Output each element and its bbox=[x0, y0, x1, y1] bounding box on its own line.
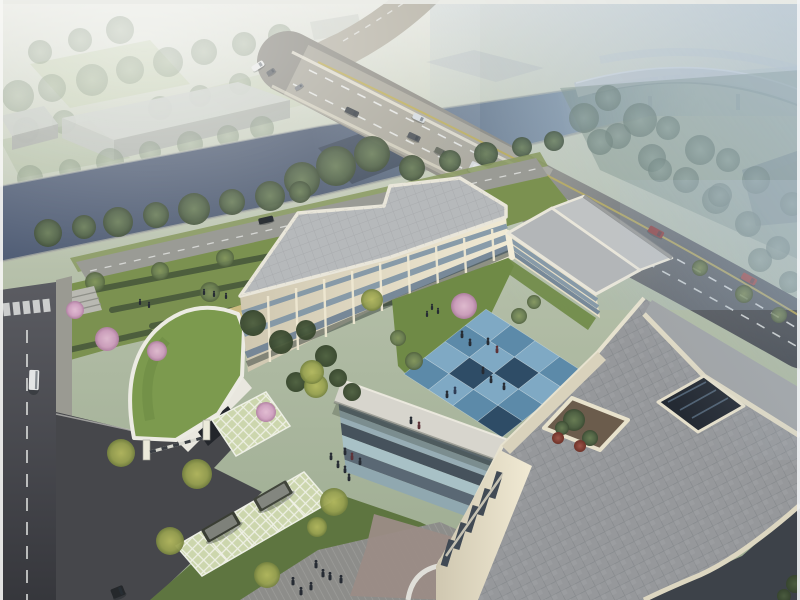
person bbox=[461, 331, 464, 339]
frame-top bbox=[0, 0, 800, 4]
person bbox=[454, 387, 457, 395]
planter-red-shrub bbox=[574, 440, 586, 452]
yellow-tree bbox=[156, 527, 184, 555]
frame-left bbox=[0, 0, 3, 600]
person bbox=[426, 311, 428, 317]
person bbox=[351, 453, 354, 461]
person bbox=[203, 289, 205, 295]
yellow-tree bbox=[107, 439, 135, 467]
person bbox=[225, 293, 227, 299]
person bbox=[437, 308, 439, 314]
yellow-tree bbox=[182, 459, 212, 489]
shrub bbox=[269, 330, 293, 354]
yellow-tree bbox=[254, 562, 280, 588]
planter-red-shrub bbox=[552, 432, 564, 444]
shrub bbox=[343, 383, 361, 401]
rendering-canvas bbox=[0, 0, 800, 600]
yellow-tree bbox=[307, 517, 327, 537]
person bbox=[496, 346, 499, 354]
person bbox=[344, 466, 347, 474]
person bbox=[213, 291, 215, 297]
shrub bbox=[329, 369, 347, 387]
person bbox=[314, 560, 317, 568]
garden-tree bbox=[151, 262, 169, 280]
yellow-tree bbox=[361, 289, 383, 311]
person bbox=[339, 575, 342, 583]
person bbox=[299, 587, 302, 595]
architectural-rendering bbox=[0, 0, 800, 600]
person bbox=[348, 474, 351, 482]
blossom-tree bbox=[147, 341, 167, 361]
gate-pillar bbox=[203, 420, 210, 440]
shrub bbox=[296, 320, 316, 340]
person bbox=[359, 458, 362, 466]
blossom-tree bbox=[95, 327, 119, 351]
yellow-tree bbox=[320, 488, 348, 516]
person bbox=[344, 448, 347, 456]
person bbox=[446, 391, 449, 399]
blossom-tree bbox=[66, 301, 84, 319]
person bbox=[321, 569, 324, 577]
person bbox=[410, 417, 413, 425]
blossom-tree bbox=[256, 402, 276, 422]
person bbox=[328, 572, 331, 580]
garden-tree bbox=[216, 249, 234, 267]
courtyard-tree bbox=[511, 308, 527, 324]
person bbox=[503, 383, 506, 391]
person bbox=[469, 339, 472, 347]
courtyard-tree bbox=[390, 330, 406, 346]
haze-right-soft bbox=[620, 180, 800, 460]
person bbox=[487, 338, 490, 346]
person bbox=[418, 422, 421, 430]
courtyard-tree bbox=[527, 295, 541, 309]
courtyard-tree bbox=[405, 352, 423, 370]
shrub bbox=[240, 310, 266, 336]
gate-pillar bbox=[143, 440, 150, 460]
person bbox=[330, 453, 333, 461]
person bbox=[431, 304, 433, 310]
person bbox=[309, 582, 312, 590]
person bbox=[148, 302, 150, 308]
yellow-tree bbox=[300, 360, 324, 384]
person bbox=[139, 299, 141, 305]
person bbox=[490, 376, 493, 384]
person bbox=[337, 461, 340, 469]
person bbox=[482, 367, 485, 375]
street-vehicle bbox=[28, 370, 40, 395]
person bbox=[291, 577, 294, 585]
blossom-tree bbox=[451, 293, 477, 319]
